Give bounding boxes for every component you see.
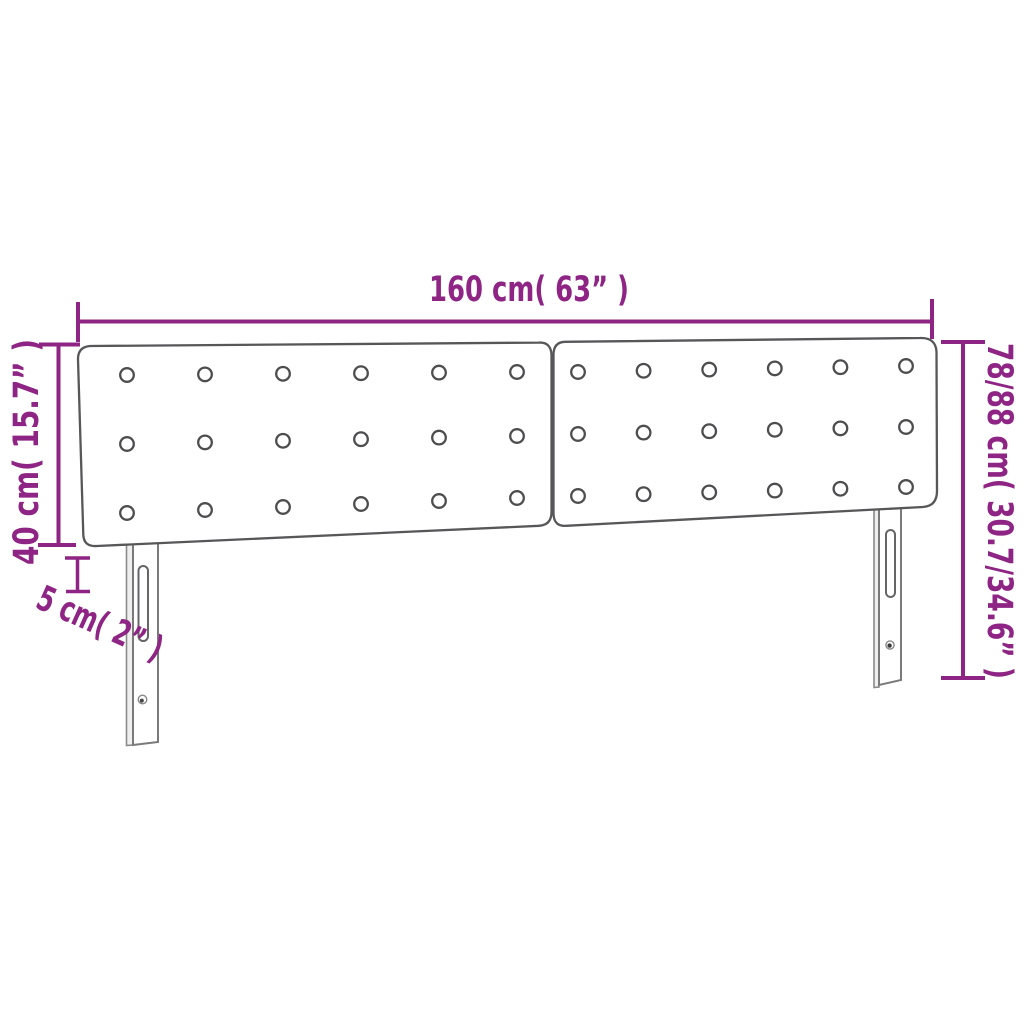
tufting-button (510, 365, 524, 379)
tufting-button (432, 431, 446, 445)
tufting-button (432, 494, 446, 508)
tufting-button (120, 506, 134, 520)
tufting-button (571, 489, 585, 503)
tufting-button (571, 427, 585, 441)
tufting-button (571, 365, 585, 379)
tufting-button (354, 497, 368, 511)
tufting-button (510, 491, 524, 505)
tufting-button (120, 368, 134, 382)
tufting-button (198, 368, 212, 382)
headboard-left-panel (78, 343, 552, 547)
tufting-button (899, 359, 913, 373)
tufting-button (354, 432, 368, 446)
total-height-dimension-label: 78/88 cm( 30.7/34.6” ) (979, 343, 1019, 679)
tufting-button (276, 367, 290, 381)
tufting-button (834, 360, 848, 374)
tufting-button (768, 484, 782, 498)
tufting-button (768, 423, 782, 437)
tufting-button (276, 500, 290, 514)
tufting-button (834, 422, 848, 436)
tufting-button (198, 436, 212, 450)
right-leg (874, 498, 901, 688)
right-leg-screw-dot (887, 643, 891, 647)
tufting-button (120, 437, 134, 451)
tufting-button (899, 480, 913, 494)
headboard (78, 338, 937, 546)
tufting-button (432, 366, 446, 380)
headboard-dimension-diagram: 160 cm( 63” ) 40 cm( 15.7” ) 78/88 cm( 3… (0, 0, 1024, 1024)
tufting-button (768, 362, 782, 376)
tufting-button (637, 364, 651, 378)
left-leg-screw-dot (140, 699, 144, 703)
tufting-button (276, 434, 290, 448)
thickness-dimension (65, 558, 90, 592)
tufting-button (198, 503, 212, 517)
tufting-button (702, 363, 716, 377)
diagram-canvas: 160 cm( 63” ) 40 cm( 15.7” ) 78/88 cm( 3… (0, 0, 1024, 1024)
tufting-button (834, 482, 848, 496)
tufting-button (637, 426, 651, 440)
total-height-dimension (941, 342, 985, 678)
tufting-button (702, 424, 716, 438)
headboard-right-panel (554, 338, 938, 526)
tufting-button (702, 486, 716, 500)
tufting-button (354, 366, 368, 380)
tufting-button (899, 420, 913, 434)
panel-height-dimension-label: 40 cm( 15.7” ) (7, 339, 47, 565)
right-leg-slot-hole (886, 530, 895, 597)
tufting-button (637, 487, 651, 501)
width-dimension-label: 160 cm( 63” ) (429, 270, 629, 310)
tufting-button (510, 429, 524, 443)
